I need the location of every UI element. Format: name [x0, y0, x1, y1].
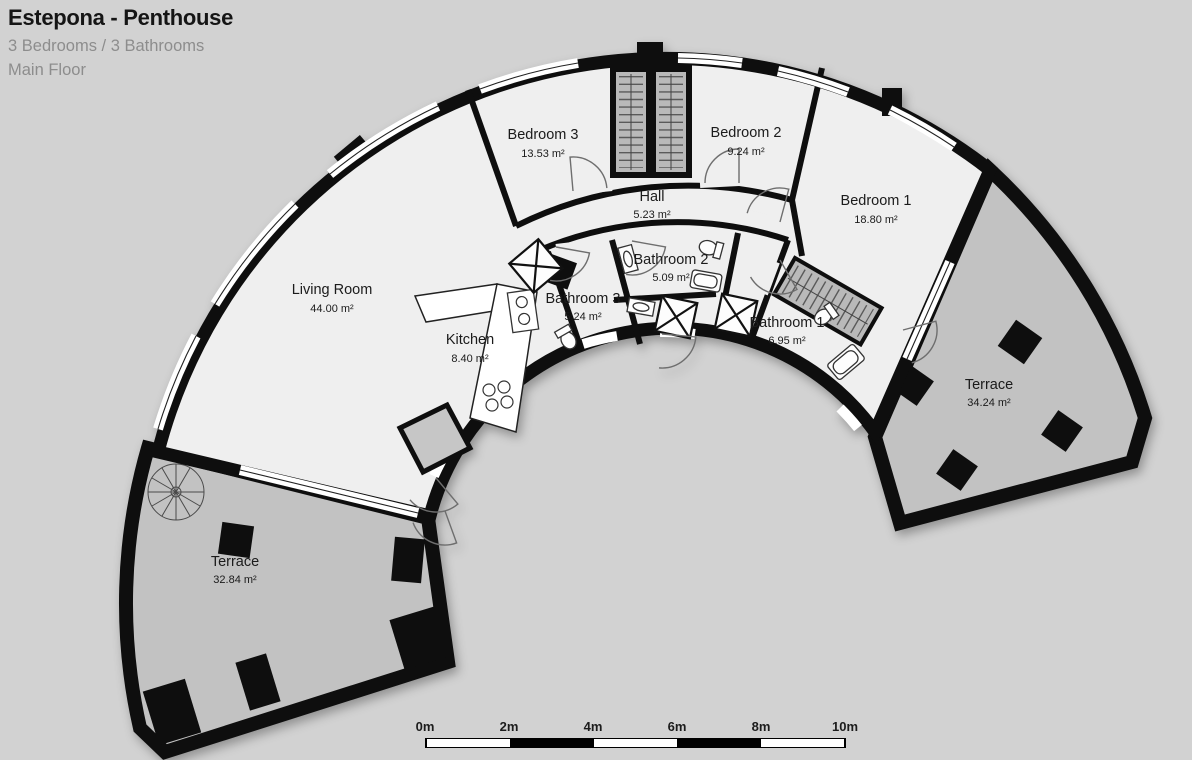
scale-tick: 2m — [500, 719, 519, 734]
scale-segment — [426, 739, 511, 747]
scale-tick: 10m — [832, 719, 858, 734]
page-title: Estepona - Penthouse — [8, 4, 233, 32]
floor-label: Main Floor — [8, 60, 233, 81]
room-name: Bathroom 1 — [750, 315, 825, 331]
room-name: Bathroom 2 — [634, 252, 709, 268]
terrace-pillar — [391, 537, 425, 583]
room-area: 34.24 m² — [967, 397, 1011, 409]
scale-tick-labels: 0m 2m 4m 6m 8m 10m — [425, 719, 846, 735]
scale-segment — [678, 739, 761, 747]
room-name: Terrace — [965, 377, 1013, 393]
room-area: 5.23 m² — [633, 209, 671, 221]
floor-plan: Bedroom 3 13.53 m² Bedroom 2 9.24 m² Bed… — [126, 42, 1145, 752]
room-name: Kitchen — [446, 332, 494, 348]
page-subtitle: 3 Bedrooms / 3 Bathrooms — [8, 36, 233, 57]
room-name: Bathroom 3 — [546, 291, 621, 307]
room-name: Bedroom 3 — [508, 127, 579, 143]
scale-tick: 0m — [416, 719, 435, 734]
shower — [655, 296, 698, 339]
room-name: Living Room — [292, 282, 373, 298]
scale-segment — [593, 739, 678, 747]
room-area: 32.84 m² — [213, 574, 257, 586]
terrace-pillar — [218, 522, 254, 558]
room-area: 5.24 m² — [564, 311, 602, 323]
room-area: 8.40 m² — [451, 353, 489, 365]
scale-bar-segments — [425, 738, 846, 748]
room-area: 18.80 m² — [854, 214, 898, 226]
room-name: Bedroom 1 — [841, 193, 912, 209]
floor-plan-page: Bedroom 3 13.53 m² Bedroom 2 9.24 m² Bed… — [0, 0, 1192, 760]
room-name: Terrace — [211, 554, 259, 570]
scale-tick: 8m — [752, 719, 771, 734]
scale-segment — [511, 739, 594, 747]
wardrobe-bedrooms-2-3 — [610, 64, 692, 178]
room-area: 6.95 m² — [768, 335, 806, 347]
scale-tick: 4m — [584, 719, 603, 734]
scale-bar: 0m 2m 4m 6m 8m 10m — [425, 719, 846, 748]
room-area: 13.53 m² — [521, 148, 565, 160]
room-area: 5.09 m² — [652, 272, 690, 284]
room-area: 44.00 m² — [310, 303, 354, 315]
floor-plan-drawing: Bedroom 3 13.53 m² Bedroom 2 9.24 m² Bed… — [0, 0, 1192, 760]
room-name: Hall — [640, 189, 665, 205]
room-area: 9.24 m² — [727, 146, 765, 158]
kitchen-sink — [507, 289, 538, 332]
room-name: Bedroom 2 — [711, 125, 782, 141]
scale-tick: 6m — [668, 719, 687, 734]
title-block: Estepona - Penthouse 3 Bedrooms / 3 Bath… — [8, 4, 233, 81]
scale-segment — [760, 739, 845, 747]
spiral-staircase — [148, 464, 204, 520]
